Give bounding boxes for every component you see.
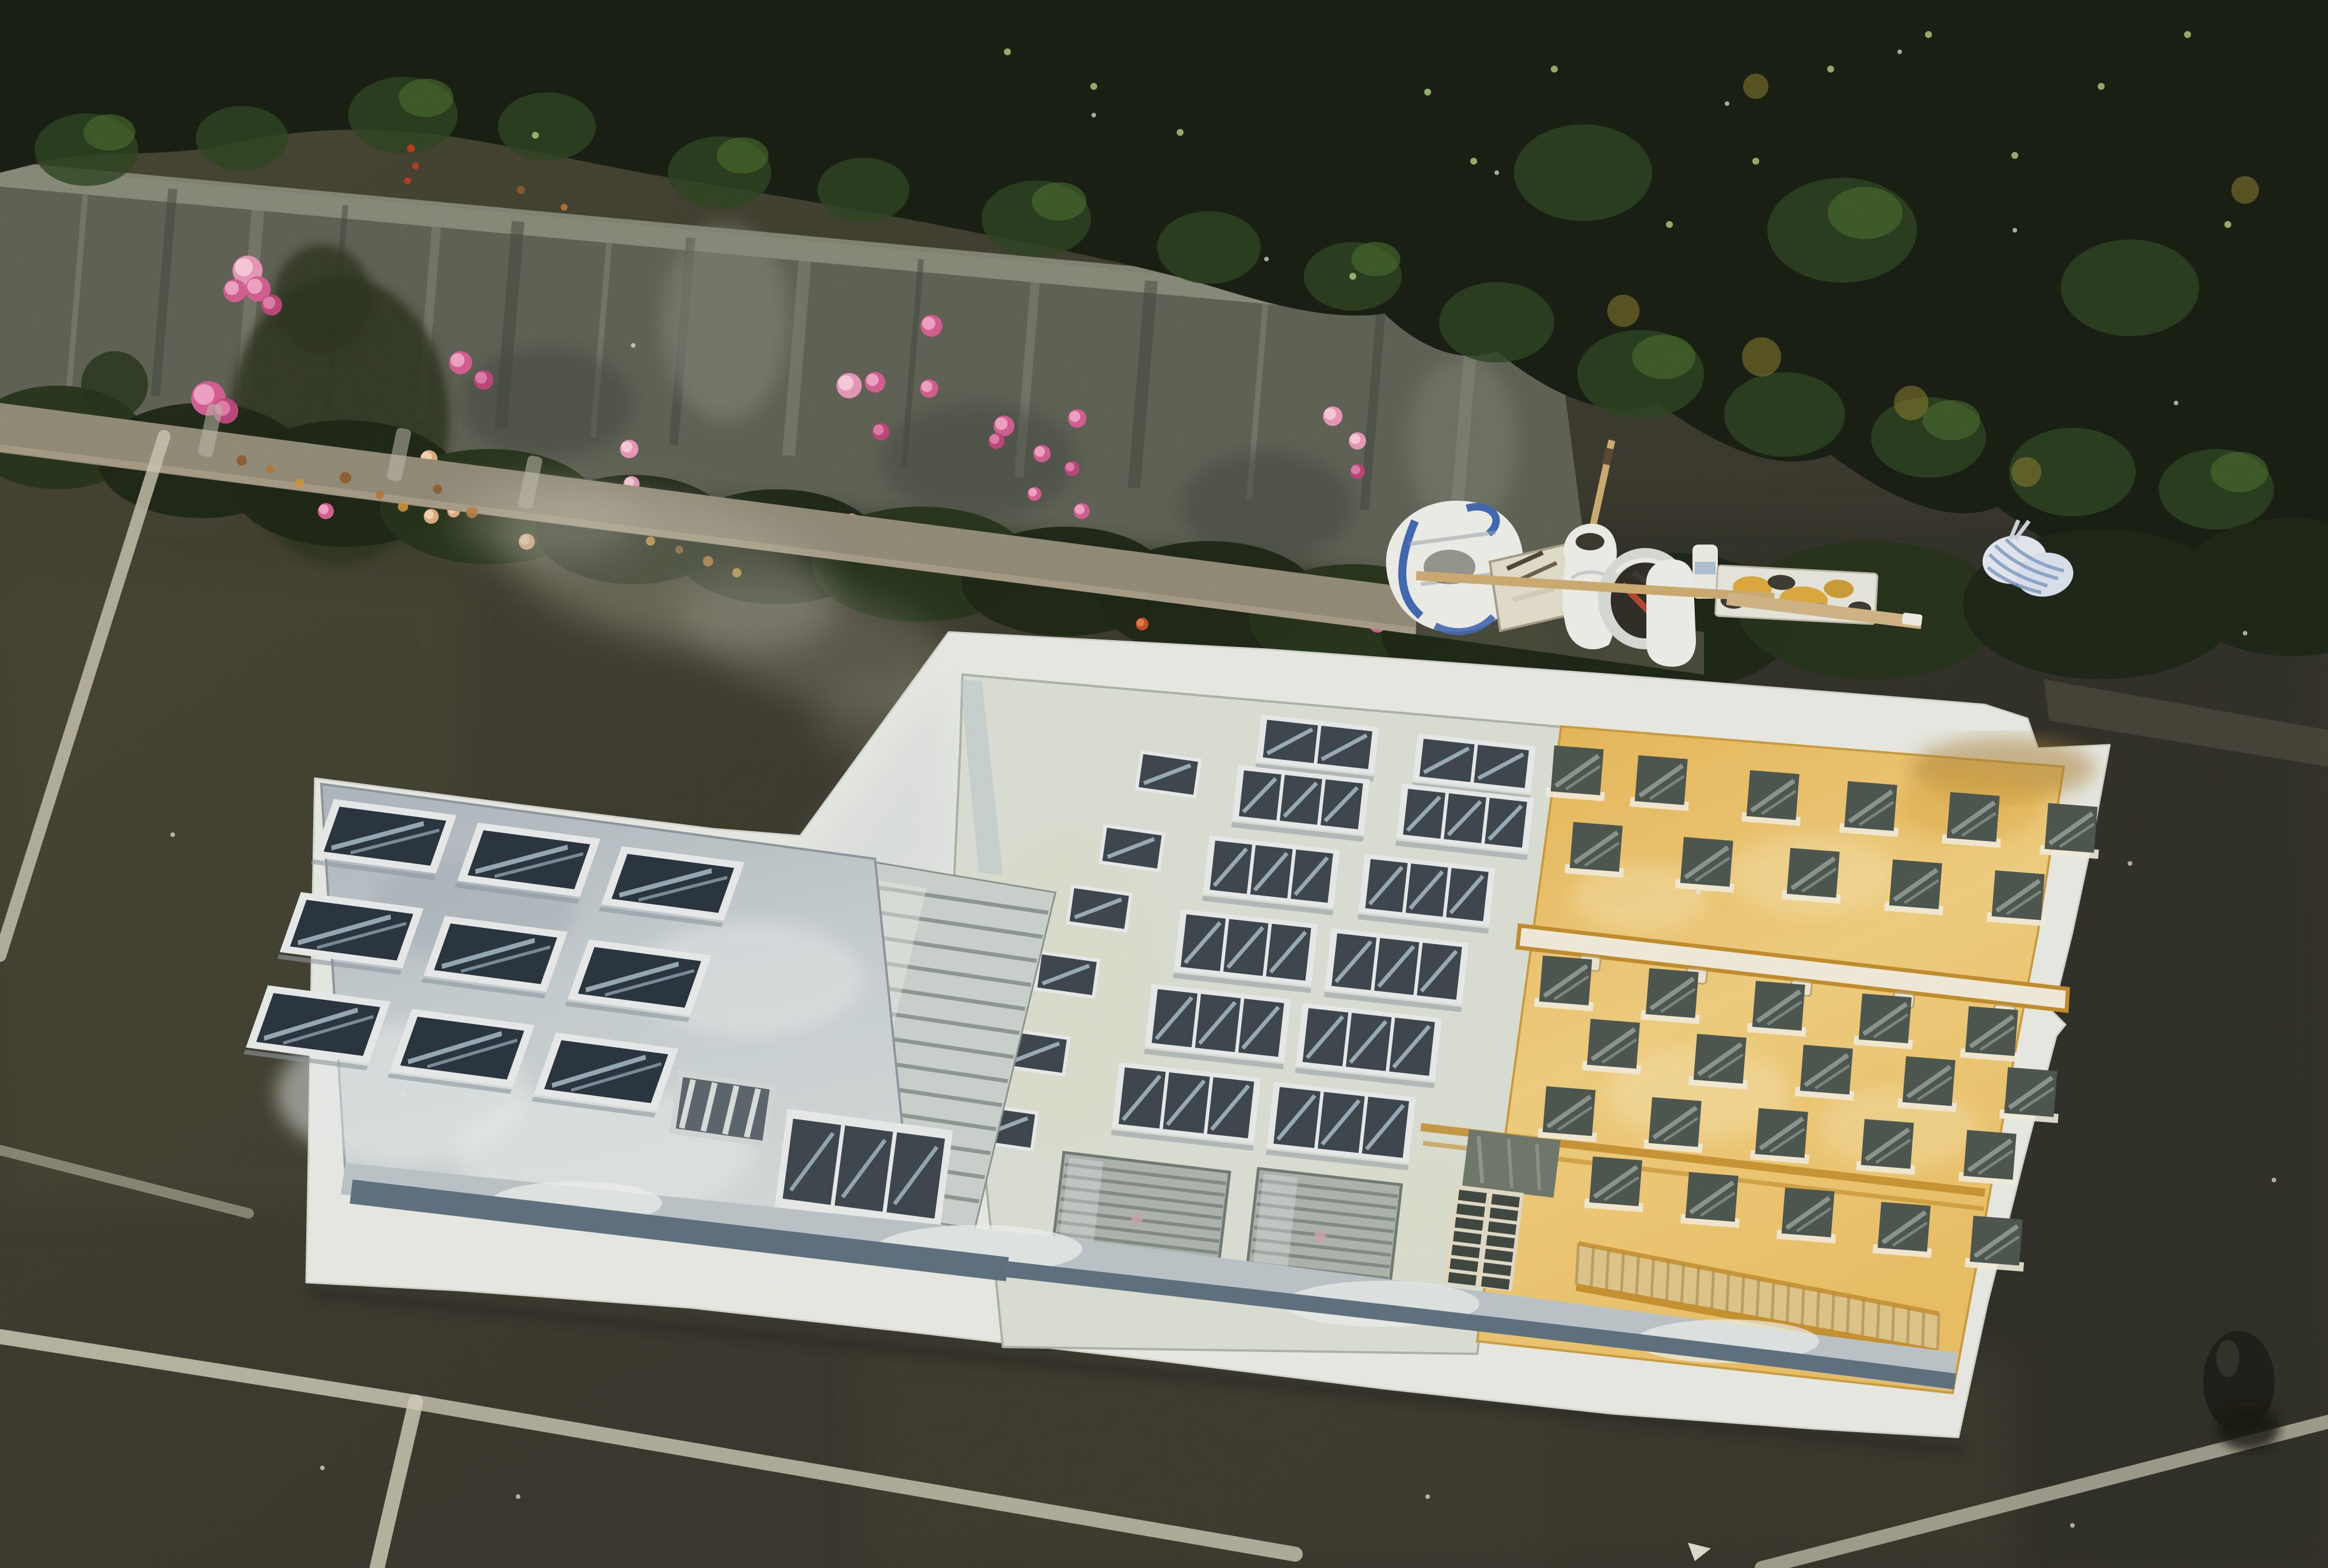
scene-canvas [0,0,2328,1568]
film-grain [0,0,2328,1568]
photo-parking-lot-mural [0,0,2328,1568]
